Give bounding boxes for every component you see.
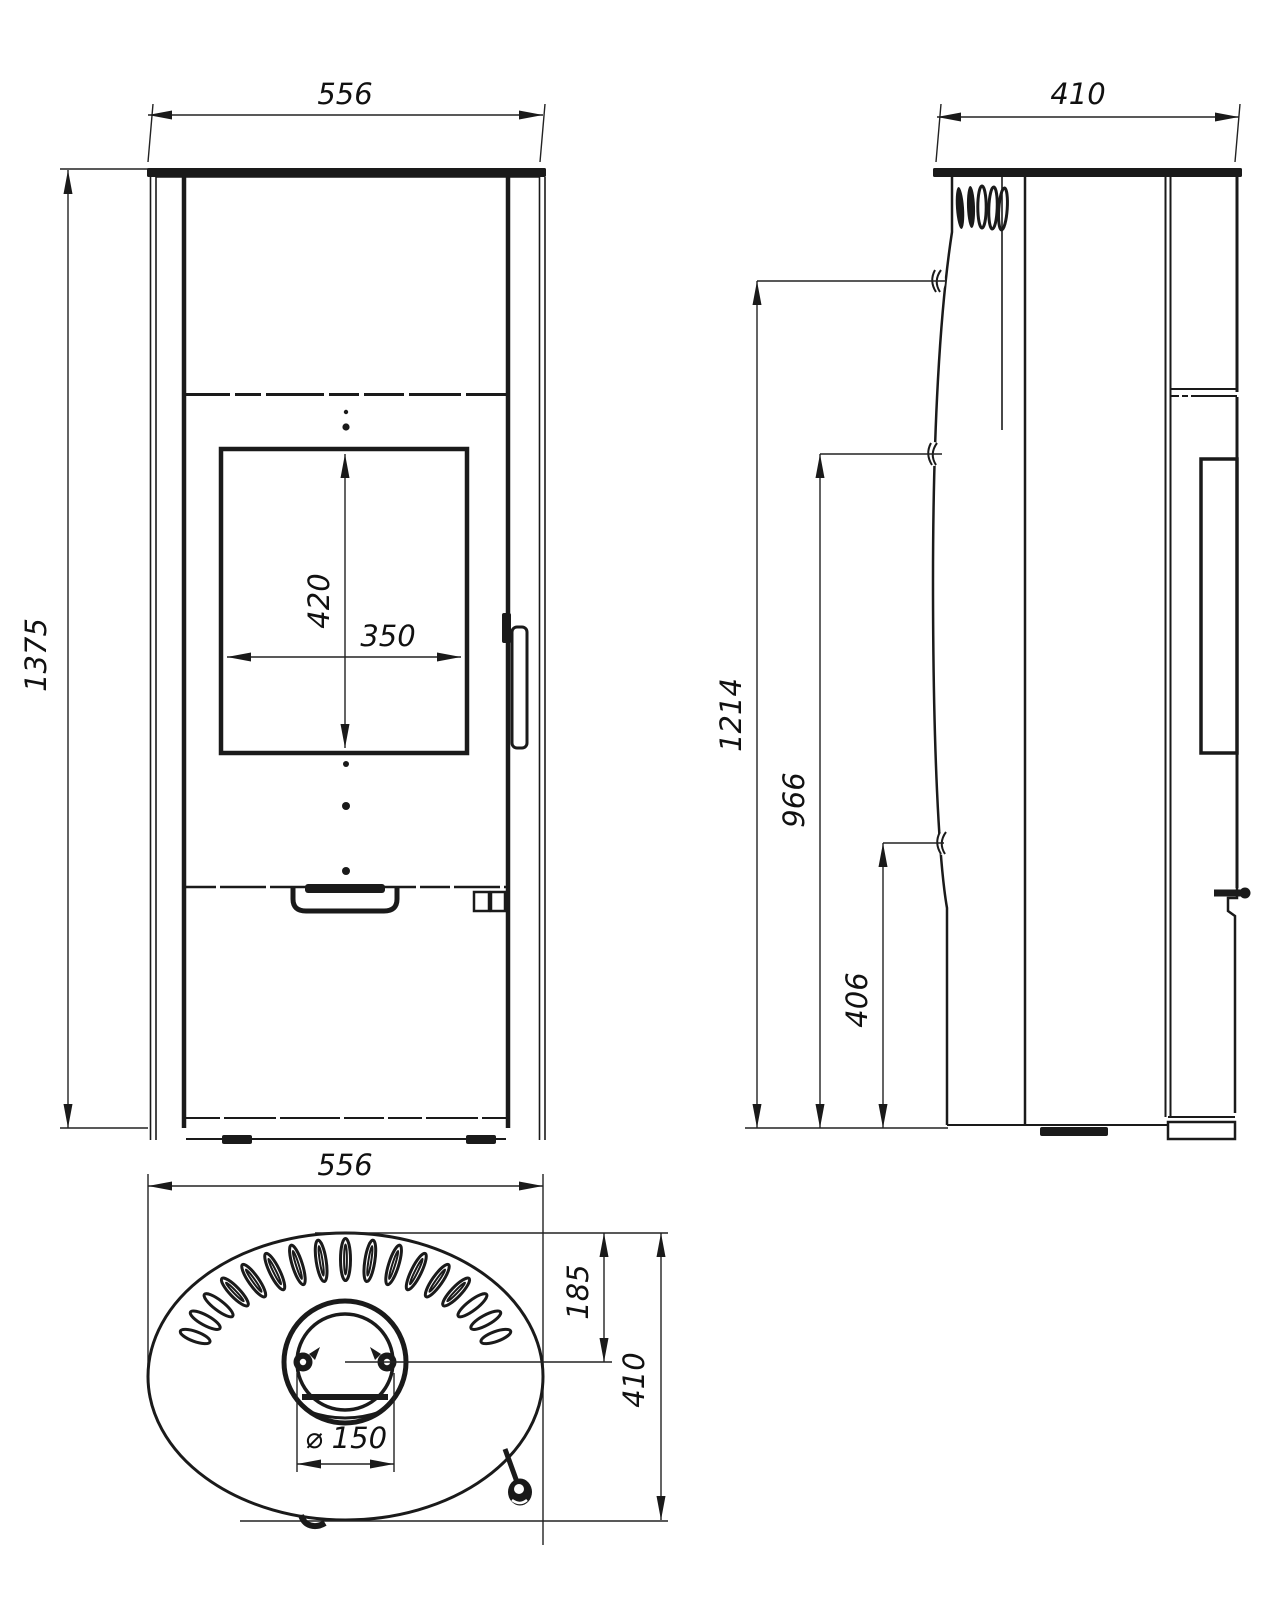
side-vents: [955, 186, 1009, 230]
vent-slot: [978, 186, 986, 228]
top-handle: [505, 1449, 532, 1506]
upper-connection-height-label: 1214: [714, 678, 748, 752]
front-joint-double-line: [1166, 177, 1171, 1117]
oval-body-outline: [148, 1233, 543, 1520]
side-foot: [1040, 1127, 1108, 1136]
top-view: 556 185 410: [148, 1148, 668, 1545]
front-height-label: 1375: [19, 618, 53, 692]
flue-diameter-label: ⌀ 150: [305, 1421, 387, 1455]
top-plate: [147, 168, 546, 177]
front-height-dimension: 1375: [19, 169, 148, 1128]
vent-slot: [997, 188, 1008, 230]
vent-slot: [955, 187, 966, 229]
dot: [343, 761, 349, 767]
latch-left: [474, 892, 489, 911]
top-width-dimension: 556: [148, 1148, 543, 1545]
extension-lines: [936, 104, 1240, 162]
latch-right: [491, 892, 505, 911]
vent-slot: [966, 186, 975, 228]
top-vent-slot: [403, 1251, 430, 1292]
side-view: 410: [714, 77, 1251, 1139]
rear-curved-edge: [933, 177, 952, 1125]
top-plate: [933, 168, 1242, 177]
side-height-dimensions: 1214 966 406: [714, 281, 948, 1128]
top-vent-slot: [286, 1244, 308, 1286]
drawing-canvas: 556 1375: [0, 0, 1288, 1597]
top-vent-fan: [179, 1239, 513, 1347]
side-depth-dimension: 410: [936, 77, 1240, 162]
flue-diameter-dimension: ⌀ 150: [297, 1373, 394, 1472]
collar-bolt-left-center: [300, 1359, 306, 1365]
window-frame: [221, 449, 467, 753]
front-width-label: 556: [317, 77, 372, 111]
top-depth-label: 410: [617, 1352, 651, 1407]
glass-profile: [1201, 459, 1237, 753]
glass-width-label: 350: [360, 619, 415, 653]
extension-lines: [148, 104, 545, 162]
dot: [342, 867, 350, 875]
extension-lines: [148, 1174, 543, 1545]
dot: [342, 423, 349, 430]
side-shell-edges: [151, 177, 546, 1140]
top-vent-slot: [179, 1326, 212, 1346]
right-foot: [466, 1135, 496, 1144]
side-outline: [927, 168, 1251, 1139]
ash-lip-and-latch: [186, 884, 506, 911]
extension-lines: [60, 169, 148, 1128]
flue-offset-label: 185: [561, 1264, 595, 1319]
handle-hinge-tab: [502, 613, 511, 643]
rear-connection-height-label: 966: [777, 772, 811, 827]
glass-window: 420 350: [221, 449, 467, 753]
base-step: [1228, 885, 1237, 1113]
plinth: [1168, 1122, 1235, 1139]
left-foot: [222, 1135, 252, 1144]
top-vent-slot-inner: [344, 1245, 347, 1275]
top-width-label: 556: [317, 1148, 372, 1182]
handle-knob: [1240, 888, 1251, 899]
front-width-dimension: 556: [148, 77, 545, 162]
side-depth-label: 410: [1050, 77, 1105, 111]
front-outline: [147, 168, 546, 1144]
door-pivot-dots: [342, 410, 350, 875]
tray-grip: [305, 884, 385, 893]
top-vent-slot: [383, 1244, 405, 1286]
handle-knob-center: [514, 1484, 524, 1494]
stove-technical-drawing: 556 1375: [0, 0, 1288, 1597]
front-view: 556 1375: [19, 77, 546, 1144]
dot: [342, 802, 350, 810]
glass-height-label: 420: [302, 573, 336, 628]
handle-bar: [512, 627, 527, 748]
mantle-edges: [184, 177, 508, 1128]
top-vent-slot: [362, 1239, 378, 1282]
dot: [344, 410, 348, 414]
top-vent-slot: [261, 1251, 288, 1292]
vent-slot: [988, 187, 998, 229]
top-vent-slot: [313, 1239, 329, 1282]
top-vent-slot: [479, 1326, 512, 1346]
lower-connection-height-label: 406: [840, 972, 874, 1027]
